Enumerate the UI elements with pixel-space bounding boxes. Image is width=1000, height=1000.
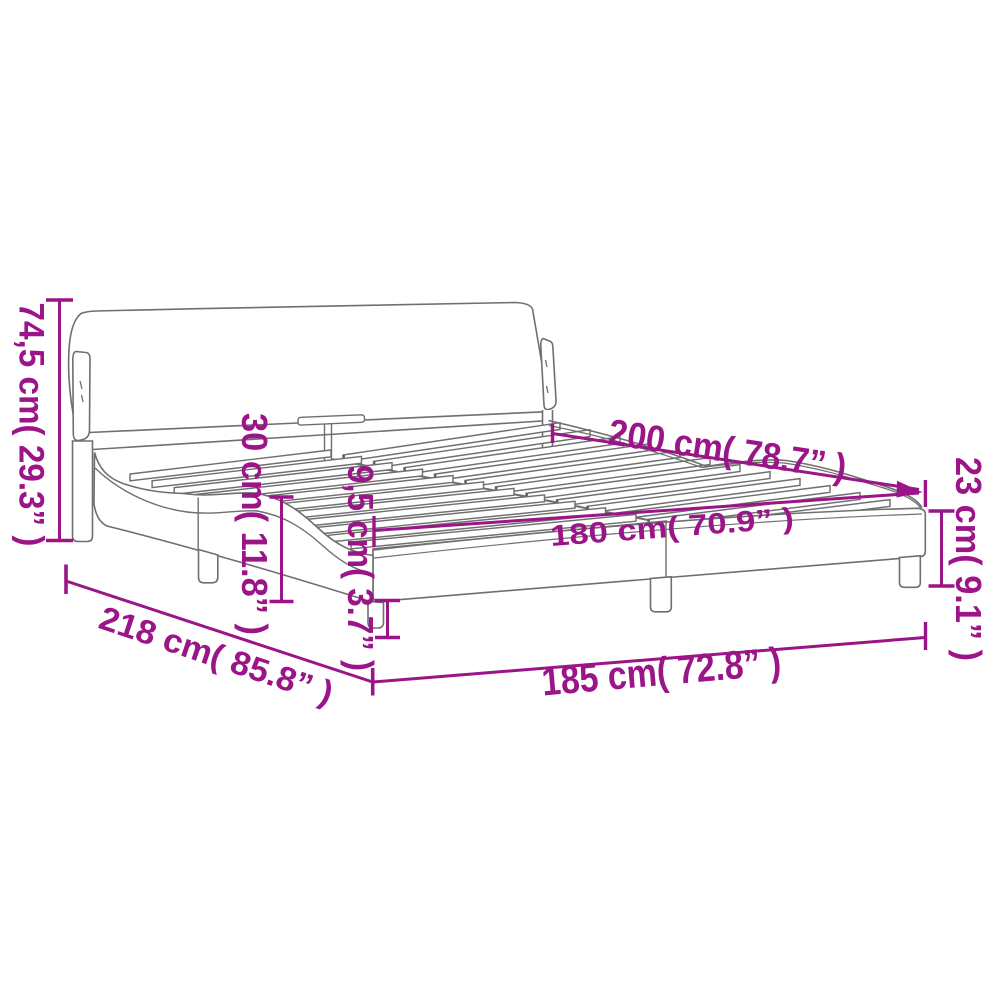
svg-text:74,5 cm( 29.3” ): 74,5 cm( 29.3” ) [12,303,52,547]
svg-text:23 cm( 9.1” ): 23 cm( 9.1” ) [948,457,989,661]
svg-text:30 cm( 11.8” ): 30 cm( 11.8” ) [234,413,275,635]
svg-text:9,5 cm( 3.7” ): 9,5 cm( 3.7” ) [340,465,381,671]
